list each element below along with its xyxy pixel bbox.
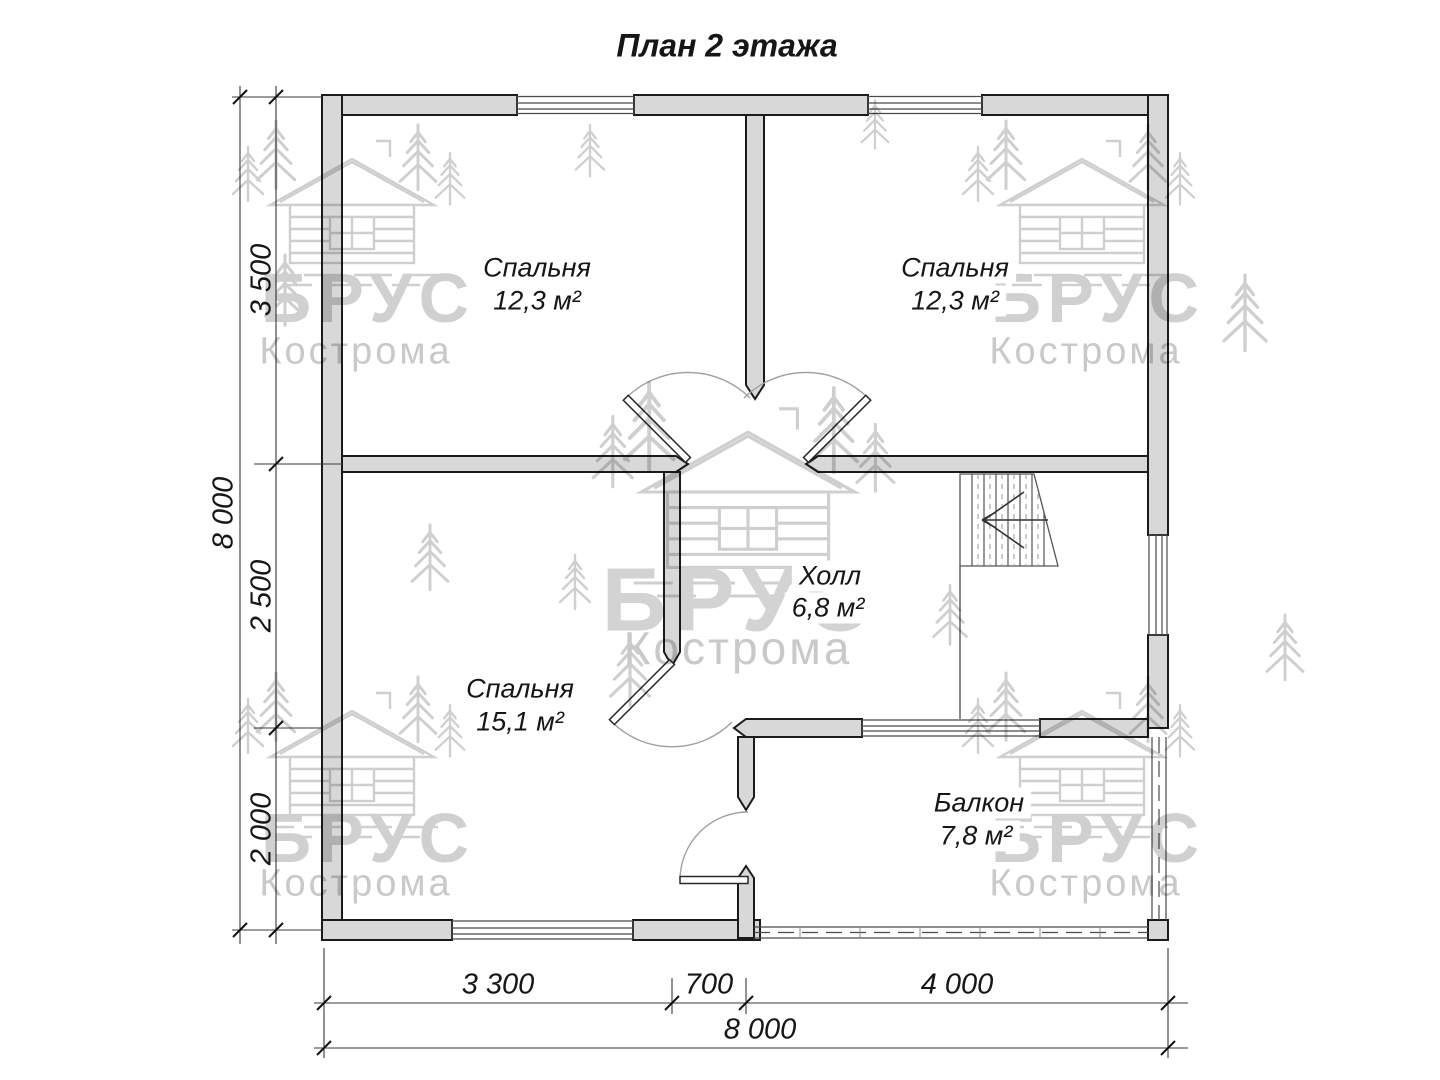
balcony-railing <box>754 737 1166 938</box>
door-arcs <box>612 372 868 880</box>
staircase <box>960 474 1058 719</box>
dimension-lines <box>232 86 1188 1058</box>
windows <box>452 96 1167 939</box>
dimension-ticks <box>233 90 1175 1055</box>
floor-plan-drawing <box>0 0 1440 1080</box>
floor-plan-page: БРУС Кострома БРУС Кострома БРУС Костром… <box>0 0 1440 1080</box>
